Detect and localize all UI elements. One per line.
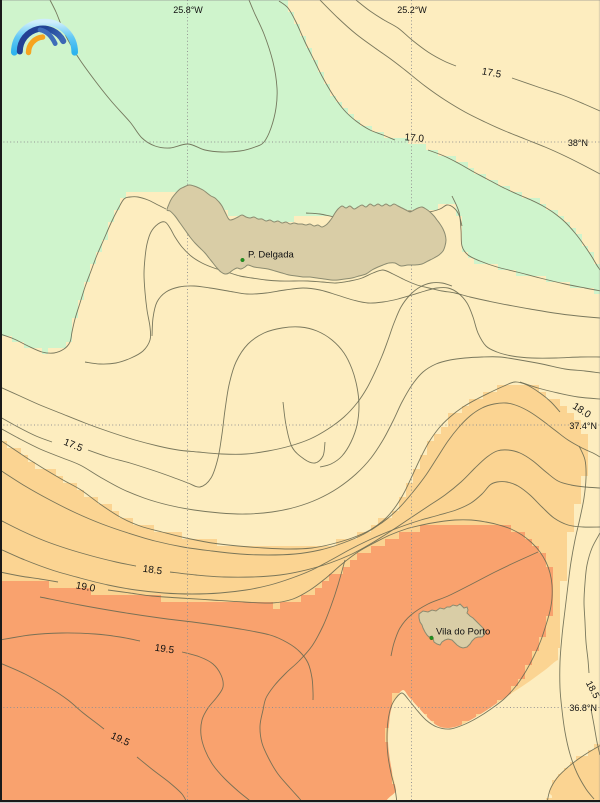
svg-text:36.8°N: 36.8°N	[569, 703, 597, 713]
svg-text:P. Delgada: P. Delgada	[248, 250, 294, 261]
svg-text:Vila do Porto: Vila do Porto	[436, 627, 490, 638]
svg-text:17.0: 17.0	[404, 132, 425, 145]
svg-text:25.2°W: 25.2°W	[397, 5, 427, 15]
svg-text:38°N: 38°N	[568, 138, 588, 148]
svg-text:37.4°N: 37.4°N	[569, 421, 597, 431]
svg-text:25.8°W: 25.8°W	[173, 5, 203, 15]
